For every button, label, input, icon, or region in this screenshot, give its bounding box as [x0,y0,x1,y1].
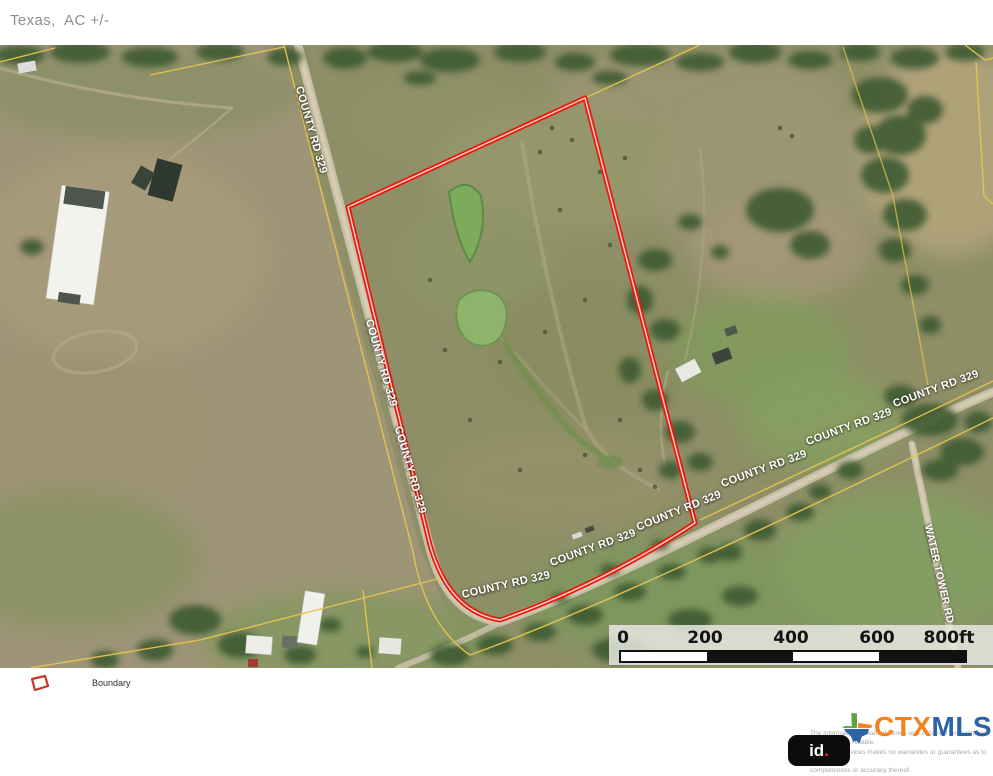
scale-tick: 800ft [923,628,974,648]
ctxmls-ctx-text: CTX [874,711,932,742]
map-legend: Boundary [28,674,131,692]
scale-tick: 0 [617,628,629,648]
ctxmls-logo: CTXMLS [842,710,992,745]
acreage-title: Texas, AC +/- [10,12,109,29]
scale-tick: 600 [859,628,895,648]
scale-tick: 200 [687,628,723,648]
scale-bar-segments [619,650,967,663]
land-id-logo: id. [788,735,850,766]
scale-tick: 400 [773,628,809,648]
boundary-legend-icon [28,674,52,692]
map-scale-bar: 0 200 400 600 800ft [609,625,993,665]
boundary-legend-label: Boundary [92,678,131,688]
map-canvas: COUNTY RD 329 COUNTY RD 329 COUNTY RD 32… [0,45,993,668]
listing-map-page: { "header": { "location_label": "Texas, … [0,0,993,768]
satellite-imagery [0,45,993,668]
ctxmls-mls-text: MLS [932,711,993,742]
